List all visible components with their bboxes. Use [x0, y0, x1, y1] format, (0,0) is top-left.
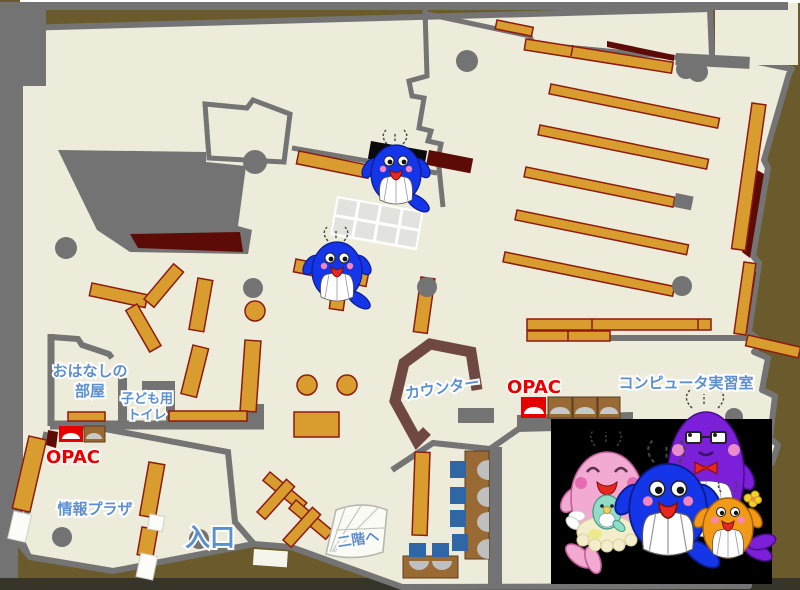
info-plaza-label: 情報プラザ — [57, 500, 132, 518]
bookshelf — [169, 411, 247, 421]
chair — [409, 543, 426, 557]
opac-station-right — [521, 397, 620, 418]
counter-back-table — [458, 408, 494, 423]
pillar — [243, 150, 267, 174]
cheek — [672, 444, 684, 456]
maroon-patch-left — [46, 430, 58, 448]
bookshelf — [68, 412, 105, 421]
computer-room-label: コンピュータ実習室 — [618, 374, 753, 392]
left-frame-bar — [0, 2, 18, 578]
library-floor-map: おはなしの 部屋 子ども用 トイレ OPAC 情報プラザ 入口 二階へ カウンタ… — [0, 0, 800, 590]
cheek — [575, 477, 587, 489]
kids-toilet-label: 子ども用 — [121, 392, 173, 407]
table-area-wall — [488, 447, 502, 585]
bookshelf — [412, 452, 430, 535]
apron-spot — [588, 529, 602, 539]
opac-label-left: OPAC — [46, 447, 100, 468]
cheek — [738, 517, 745, 524]
glasses — [686, 432, 701, 443]
reading-table — [403, 556, 458, 578]
entrance-label: 入口 — [185, 523, 235, 552]
cheek — [728, 444, 740, 456]
kids-toilet-label2: トイレ — [127, 408, 166, 423]
top-left-wall-block — [17, 2, 46, 86]
pillar — [55, 237, 77, 259]
glasses — [711, 432, 726, 443]
floor-map-svg: おはなしの 部屋 子ども用 トイレ OPAC 情報プラザ 入口 二階へ カウンタ… — [0, 0, 800, 590]
chair — [452, 534, 468, 551]
pillar — [417, 277, 437, 297]
chair — [450, 461, 466, 478]
round-table — [245, 301, 265, 321]
pillar — [52, 527, 72, 547]
chair — [450, 510, 466, 527]
door-gap — [147, 514, 164, 531]
pillar — [688, 62, 708, 82]
pillar — [456, 50, 478, 72]
opac-label-right: OPAC — [507, 377, 561, 398]
cheek — [712, 517, 719, 524]
table — [294, 412, 339, 437]
chair — [432, 543, 449, 557]
round-table — [337, 375, 357, 395]
entrance-door-gap — [253, 549, 288, 567]
storytelling-room-label2: 部屋 — [75, 382, 105, 400]
bookshelf — [527, 319, 711, 330]
round-table — [297, 375, 317, 395]
pillar — [243, 278, 263, 298]
top-frame-bar — [17, 2, 788, 10]
pacifier — [604, 507, 611, 514]
storytelling-room-label: おはなしの — [52, 362, 127, 380]
pillar — [672, 276, 692, 296]
opac-station-left — [59, 426, 105, 442]
chair — [450, 487, 466, 504]
